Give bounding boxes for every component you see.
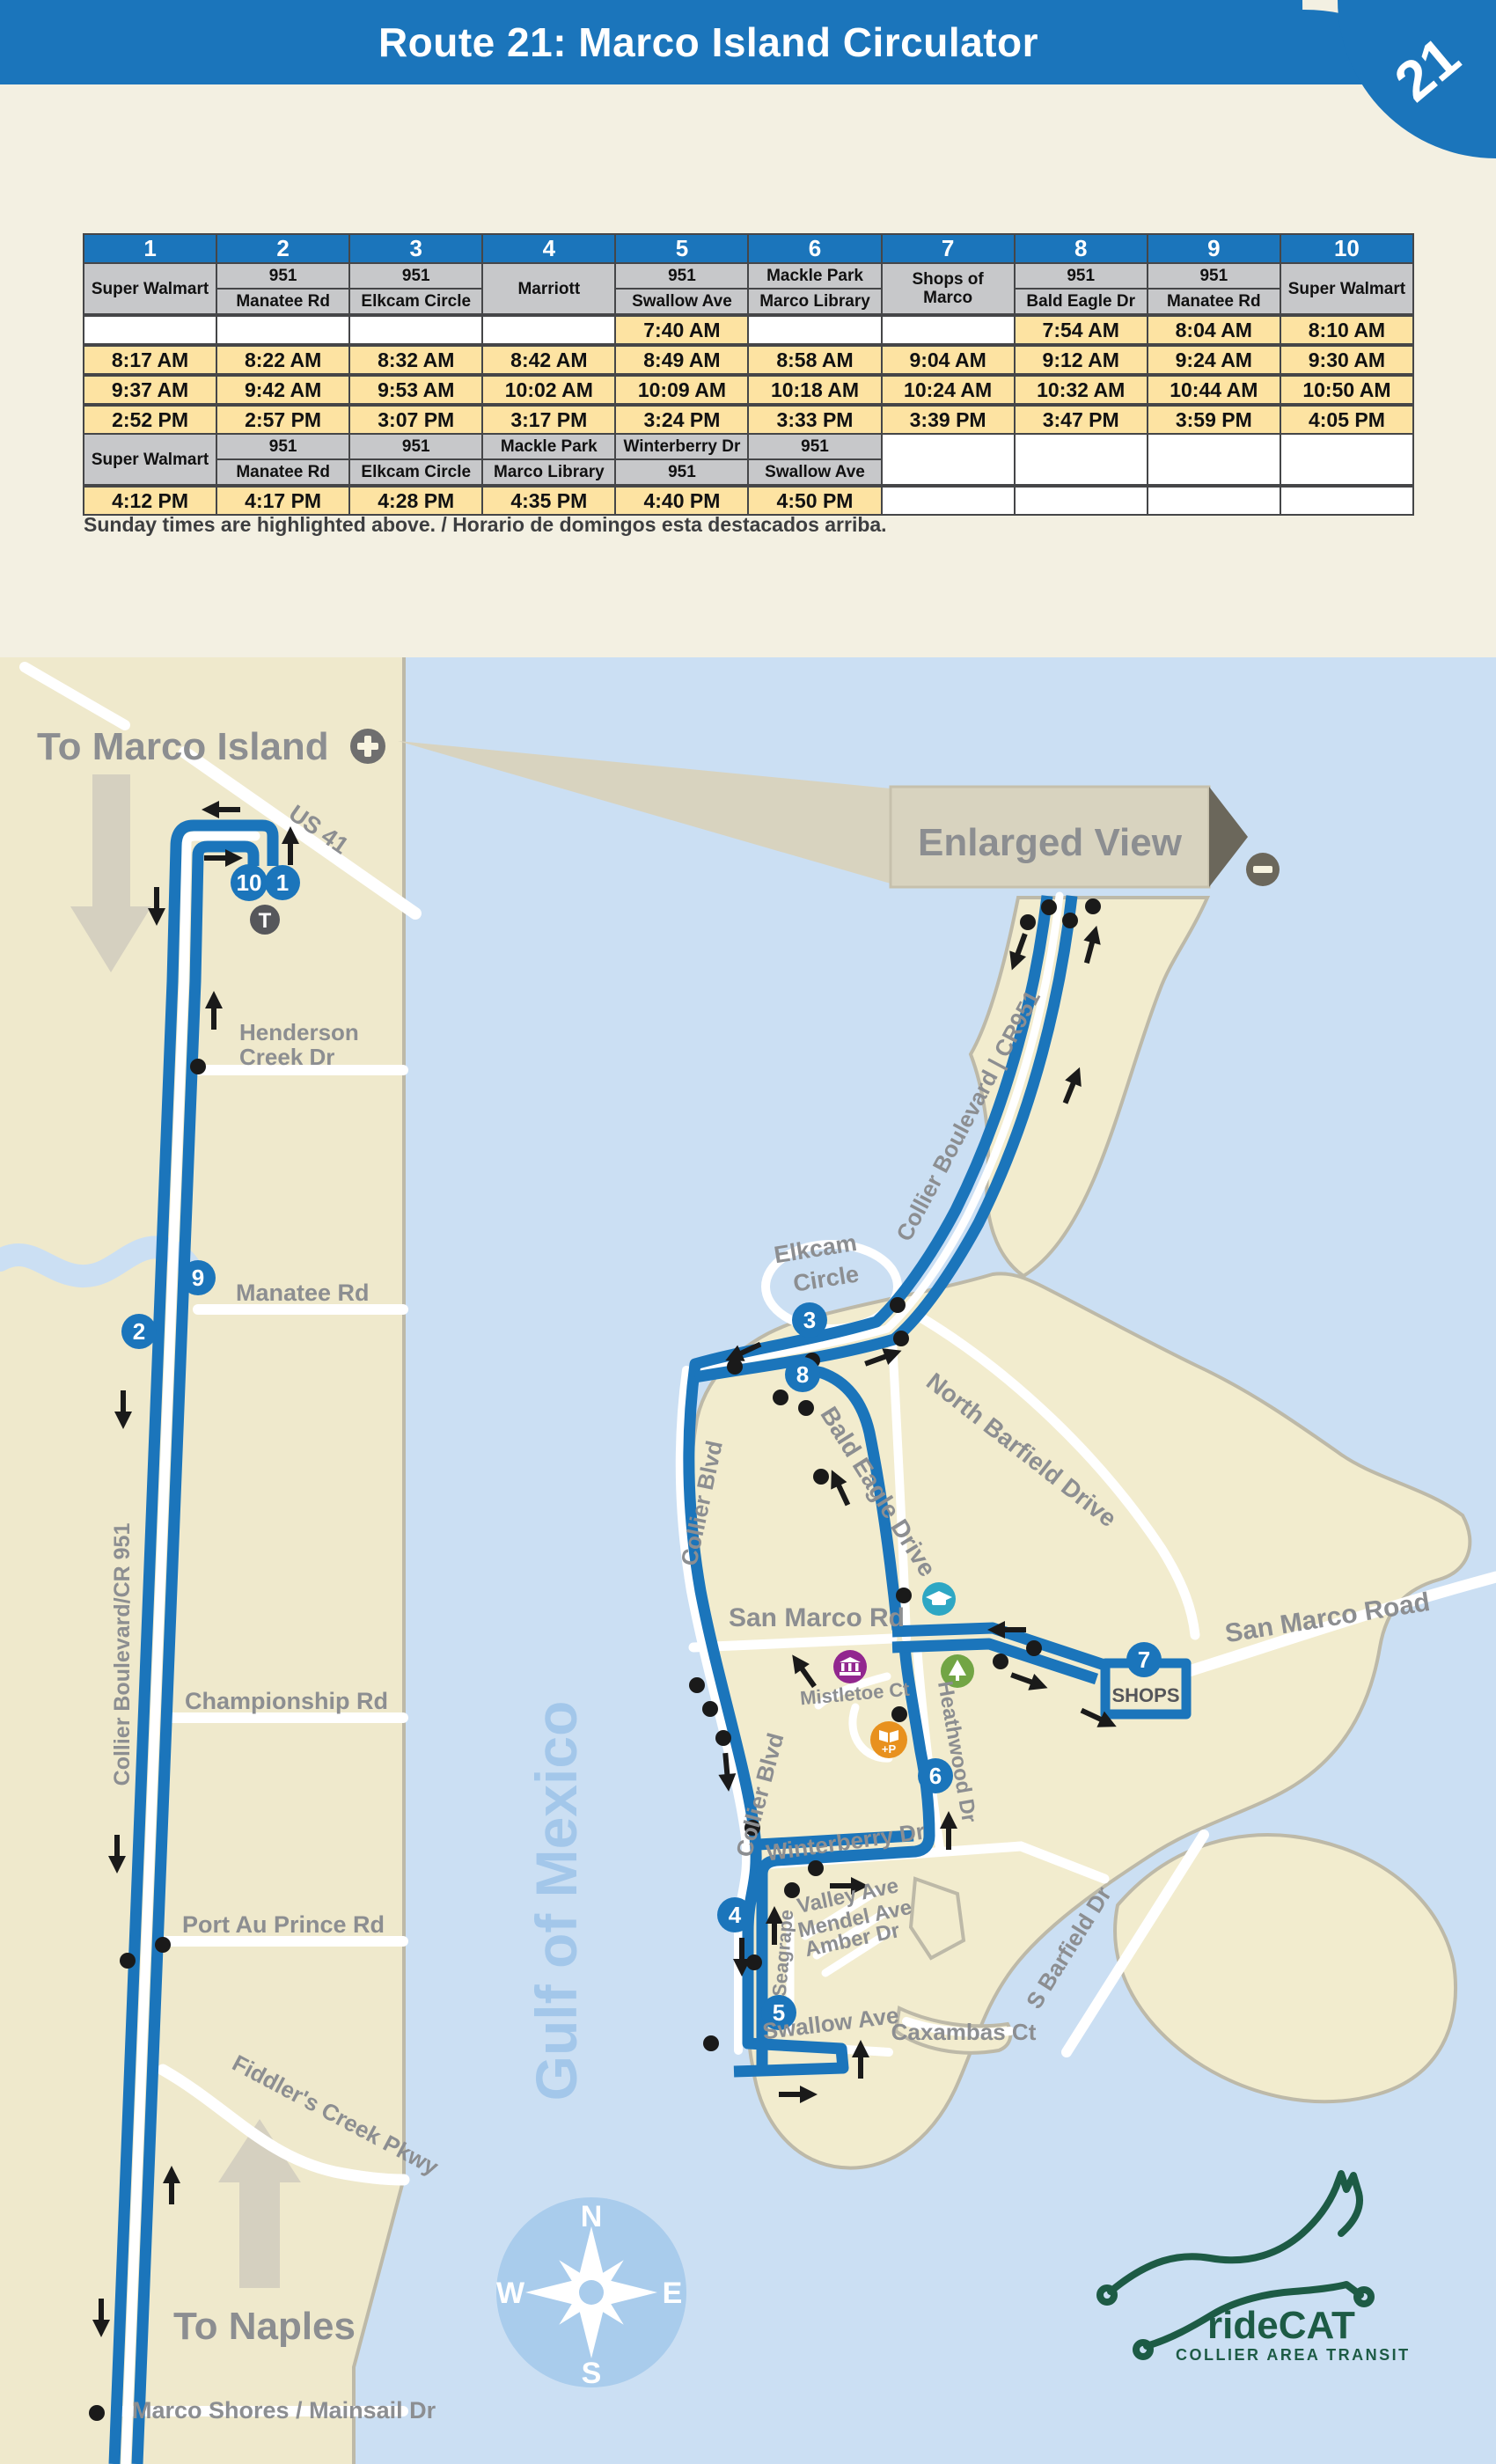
to-marco-island-label: To Marco Island [37,725,329,768]
stop-col-5: 5 [615,234,748,263]
championship-label: Championship Rd [185,1688,388,1714]
collier-cr951-label: Collier Boulevard/CR 951 [110,1523,135,1786]
henderson-label-2: Creek Dr [239,1044,334,1070]
marco-shores-label: Marco Shores / Mainsail Dr [132,2397,436,2424]
stop-col-10: 10 [1280,234,1413,263]
port-au-prince-label: Port Au Prince Rd [182,1911,385,1938]
stop-name: 951Manatee Rd [1148,263,1280,315]
stop-badge-1: 1 [265,865,300,900]
stop-name: 951Bald Eagle Dr [1015,263,1148,315]
stop-name: 951Manatee Rd [216,434,349,486]
stop-name: Super Walmart [84,263,216,315]
svg-text:7: 7 [1138,1646,1150,1673]
stop-name: Winterberry Dr951 [615,434,748,486]
svg-text:1: 1 [276,869,289,896]
compass-w: W [496,2277,525,2310]
museum-icon [833,1650,867,1683]
compass-n: N [581,2200,603,2233]
page-title: Route 21: Marco Island Circulator [0,0,1417,84]
caxambas-label: Caxambas Ct [891,2019,1037,2045]
stop-name: Mackle ParkMarco Library [748,263,881,315]
stop-name: 951Swallow Ave [748,434,881,486]
stop-name: 951Elkcam Circle [349,263,482,315]
stop-badge-9: 9 [180,1260,216,1295]
route-map-poster: 21 Route 21: Marco Island Circulator 1 2… [0,0,1496,2464]
shops-label: SHOPS [1111,1684,1179,1706]
svg-text:6: 6 [929,1763,942,1789]
gulf-of-mexico-label: Gulf of Mexico [524,1701,589,2101]
stop-name: Super Walmart [84,434,216,486]
time-row: 2:52 PM 2:57 PM 3:07 PM 3:17 PM 3:24 PM … [84,405,1413,434]
stop-badge-10: 10 [231,864,268,901]
stop-name-blank [882,434,1015,486]
time-row: 8:17 AM 8:22 AM 8:32 AM 8:42 AM 8:49 AM … [84,345,1413,375]
stop-name: Shops of Marco [882,263,1015,315]
svg-text:9: 9 [192,1265,204,1291]
ridecat-wordmark: rideCAT [1207,2304,1355,2347]
stop-col-6: 6 [748,234,881,263]
stop-name-row-1: Super Walmart 951Manatee Rd 951Elkcam Ci… [84,263,1413,315]
transfer-badge: T [250,905,280,935]
stop-name: Mackle ParkMarco Library [482,434,615,486]
stop-col-8: 8 [1015,234,1148,263]
stop-number-row: 1 2 3 4 5 6 7 8 9 10 [84,234,1413,263]
stop-name: Super Walmart [1280,263,1413,315]
enlarged-view-label: Enlarged View [918,821,1183,864]
svg-text:8: 8 [796,1361,809,1388]
stop-name: Marriott [482,263,615,315]
henderson-label-1: Henderson [239,1019,359,1045]
compass-s: S [582,2357,602,2390]
stop-col-1: 1 [84,234,216,263]
stop-col-3: 3 [349,234,482,263]
time-row: 7:40 AM 7:54 AM 8:04 AM 8:10 AM [84,315,1413,345]
time-row: 9:37 AM 9:42 AM 9:53 AM 10:02 AM 10:09 A… [84,375,1413,405]
stop-col-4: 4 [482,234,615,263]
stop-badge-3: 3 [792,1302,827,1338]
stop-name-blank [1015,434,1148,486]
stop-name: 951Manatee Rd [216,263,349,315]
stop-name: 951Elkcam Circle [349,434,482,486]
svg-text:2: 2 [133,1318,145,1345]
to-naples-label: To Naples [173,2305,356,2348]
stop-badge-4: 4 [717,1897,752,1932]
svg-text:3: 3 [803,1307,816,1333]
stop-col-2: 2 [216,234,349,263]
map: Enlarged View [0,657,1496,2464]
stop-name: 951Swallow Ave [615,263,748,315]
plus-icon [350,729,385,764]
stop-badge-2: 2 [121,1314,157,1349]
stop-name-blank [1280,434,1413,486]
stop-name-row-2: Super Walmart 951Manatee Rd 951Elkcam Ci… [84,434,1413,486]
stop-col-7: 7 [882,234,1015,263]
school-icon [922,1582,956,1616]
stop-badge-7: 7 [1126,1642,1162,1677]
timetable: 1 2 3 4 5 6 7 8 9 10 Super Walmart 951Ma… [83,233,1414,516]
svg-text:10: 10 [237,869,262,896]
svg-text:4: 4 [729,1902,742,1928]
stop-col-9: 9 [1148,234,1280,263]
collier-area-transit-label: COLLIER AREA TRANSIT [1176,2346,1411,2364]
compass-e: E [663,2277,683,2310]
san-marco-rd-label: San Marco Rd [729,1603,905,1632]
time-row: 4:12 PM 4:17 PM 4:28 PM 4:35 PM 4:40 PM … [84,486,1413,515]
svg-text:T: T [259,909,272,933]
stop-name-blank [1148,434,1280,486]
library-parking-icon: +P [870,1721,907,1758]
manatee-label: Manatee Rd [236,1280,370,1306]
stop-badge-8: 8 [785,1357,820,1392]
svg-text:+P: +P [882,1742,897,1756]
sunday-footnote: Sunday times are highlighted above. / Ho… [84,513,887,537]
